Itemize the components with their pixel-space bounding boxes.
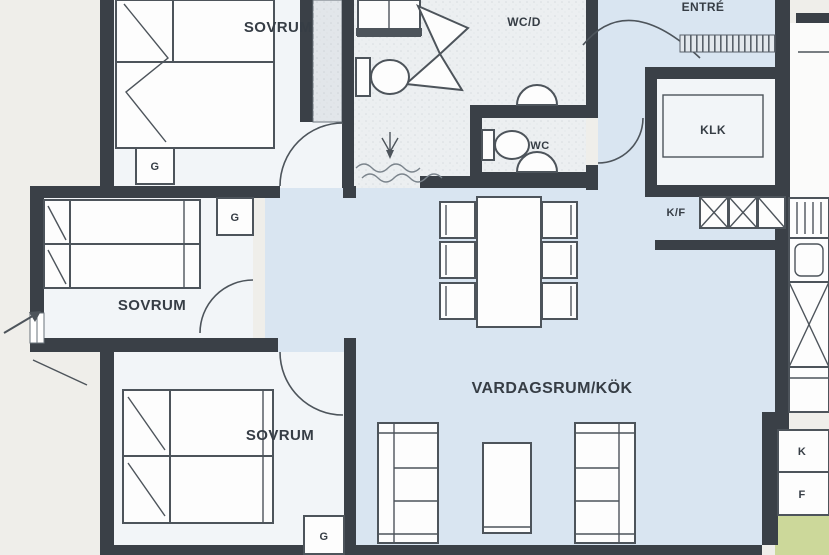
wall-bedroom-middle-bottom — [30, 338, 278, 352]
room-label-klk: KLK — [700, 123, 726, 137]
label-wardrobe-top: G — [151, 161, 160, 173]
room-label-bedroom-bottom: SOVRUM — [246, 427, 314, 444]
dining-chair — [440, 283, 475, 319]
wall-bedroom-top-bottom — [30, 186, 280, 198]
kitchen-counter-right — [789, 198, 829, 412]
sofa-left — [378, 423, 438, 543]
wall-bottom — [100, 545, 762, 555]
label-fridge-freezer-unit: K/F — [667, 207, 686, 219]
dining-chair — [440, 242, 475, 278]
coffee-table — [483, 443, 531, 533]
entrance-doormat — [680, 35, 775, 52]
wall-klk-top — [645, 67, 785, 79]
dining-chair — [440, 202, 475, 238]
floor-plan-drawing: SOVRUM SOVRUM SOVRUM WC/D WC ENTRÉ KLK K… — [0, 0, 829, 555]
room-label-bathroom: WC/D — [507, 15, 541, 29]
double-bed-bottom — [123, 390, 273, 523]
dining-table — [477, 197, 541, 327]
dining-chair — [542, 283, 577, 319]
sofa-right — [575, 423, 635, 543]
wall-bedroom-bottom-right — [344, 338, 356, 555]
wall-left-lower — [100, 352, 114, 555]
wall-bathroom-right-upper — [586, 0, 598, 118]
wall-right-outer — [775, 0, 790, 197]
wall-kitchen-right-run — [775, 197, 789, 430]
label-freezer: F — [798, 489, 805, 501]
wall-left-upper — [100, 0, 114, 188]
washing-machine — [356, 0, 422, 36]
dining-chair — [542, 242, 577, 278]
wall-klk-left — [645, 67, 657, 197]
wall-kitchen-counter-edge — [655, 240, 787, 250]
stairwell-floor — [790, 23, 829, 197]
wall-appliance-niche — [762, 412, 778, 545]
wall-wc-bottom — [470, 172, 598, 185]
room-label-living-kitchen: VARDAGSRUM/KÖK — [472, 378, 633, 397]
lawn-patch — [775, 516, 829, 555]
room-label-bedroom-top: SOVRUM — [244, 19, 312, 36]
double-bed-middle — [44, 200, 200, 288]
wall-wc-top — [470, 105, 598, 118]
dining-chair — [542, 202, 577, 238]
floor-plan: SOVRUM SOVRUM SOVRUM WC/D WC ENTRÉ KLK K… — [0, 0, 829, 555]
room-label-entrance: ENTRÉ — [682, 0, 725, 14]
label-wardrobe-bottom: G — [320, 531, 329, 543]
room-label-bedroom-middle: SOVRUM — [118, 297, 186, 314]
label-wardrobe-middle: G — [231, 212, 240, 224]
wall-klk-bottom — [645, 185, 787, 197]
dining-table-group — [440, 197, 577, 327]
room-label-wc: WC — [530, 140, 549, 152]
label-fridge: K — [798, 446, 806, 458]
toilet-wc — [482, 130, 529, 160]
built-in-wardrobe-texture — [313, 0, 342, 122]
wall-stairwell-top — [796, 13, 829, 23]
toilet-bathroom — [356, 58, 409, 96]
wall-bathroom-left — [342, 0, 354, 188]
kitchen-counter-top — [700, 197, 785, 228]
